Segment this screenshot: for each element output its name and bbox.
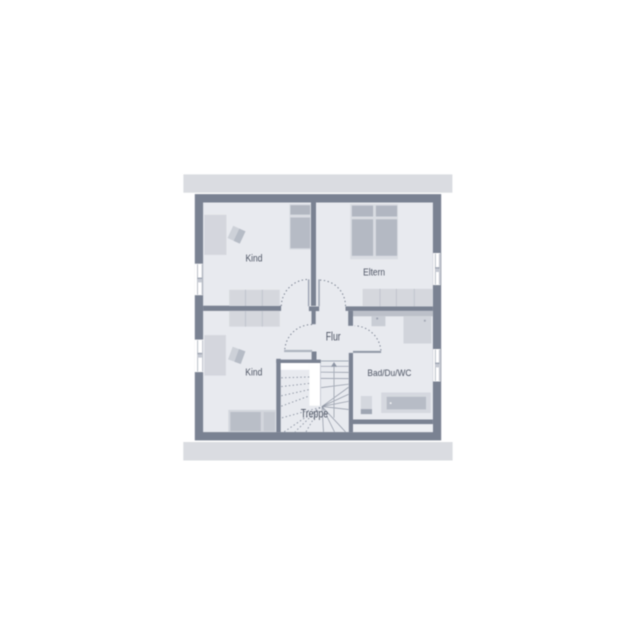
svg-text:Kind: Kind: [246, 253, 263, 264]
svg-text:Treppe: Treppe: [301, 406, 329, 420]
svg-text:Kind: Kind: [245, 367, 262, 378]
svg-text:Flur: Flur: [326, 331, 341, 343]
svg-text:Eltern: Eltern: [363, 267, 385, 278]
svg-text:Bad/Du/WC: Bad/Du/WC: [367, 368, 411, 379]
